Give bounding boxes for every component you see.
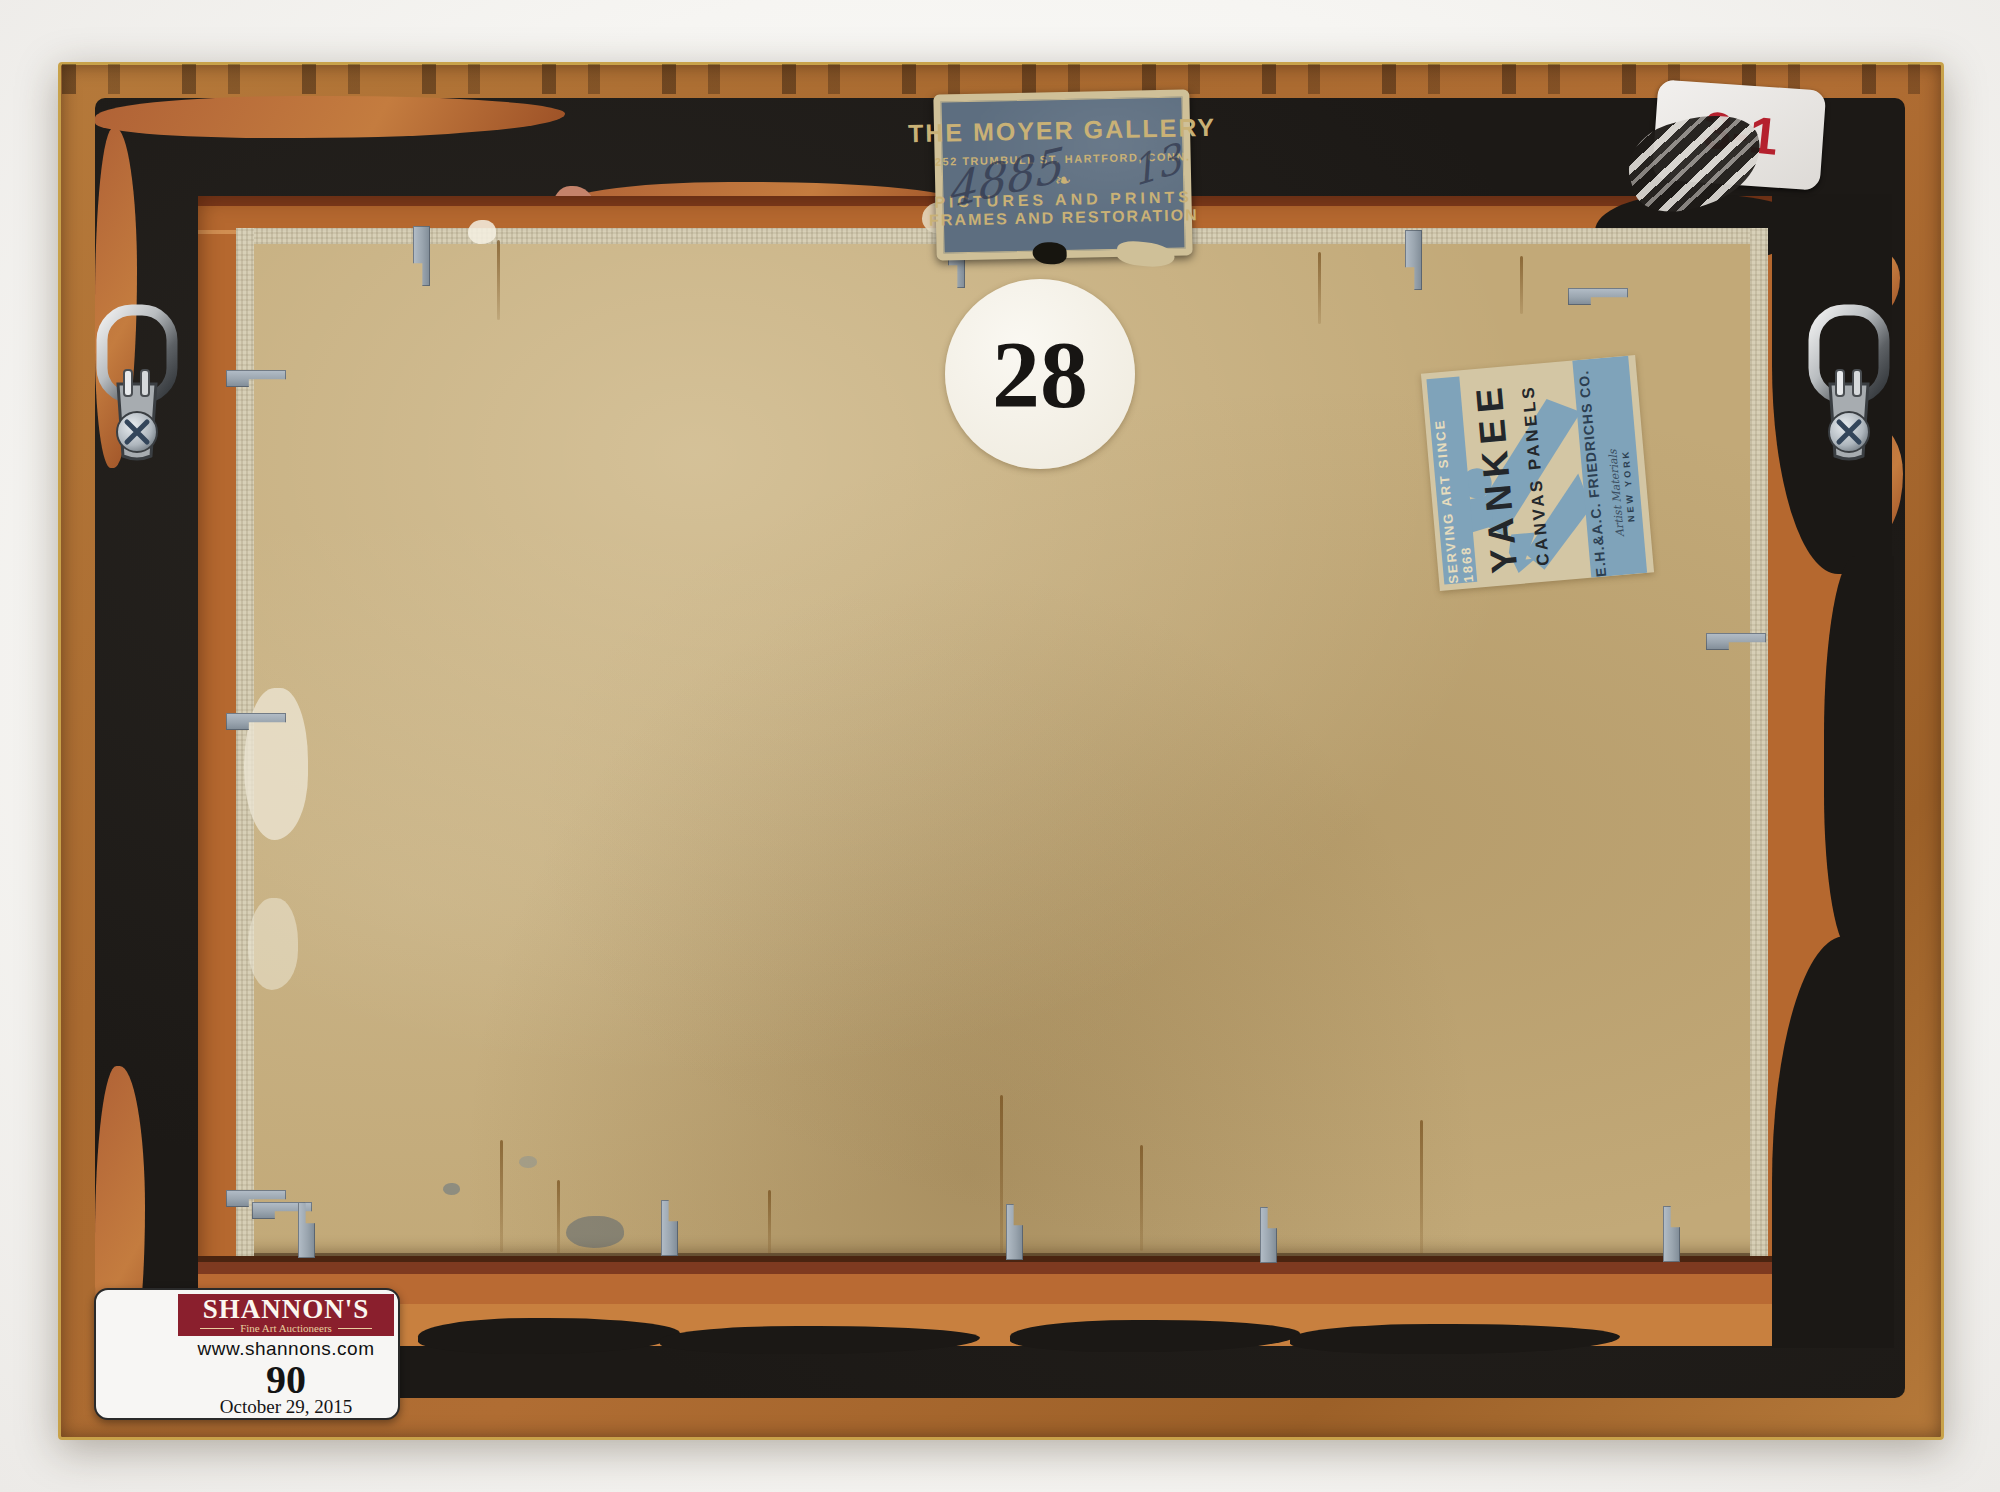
white-paint-smear (248, 898, 298, 990)
drip-mark (768, 1190, 771, 1254)
canvas-panel-right-edge (1750, 228, 1768, 1256)
drip-mark (497, 240, 500, 320)
strap-prong (124, 370, 132, 396)
auction-house-name: SHANNON'S (203, 1296, 370, 1322)
d-ring-hanger-right (1806, 304, 1896, 469)
drip-mark (1318, 252, 1321, 324)
yankee-canvas-panels-label: SERVING ART SINCE 1868 YANKEE CANVAS PAN… (1421, 355, 1654, 591)
drip-mark (500, 1140, 503, 1252)
blue-smudge (443, 1183, 460, 1195)
blue-smudge (519, 1156, 537, 1168)
d-ring-hanger-left (94, 304, 184, 469)
white-fleck (468, 220, 496, 244)
strap-prong (1836, 370, 1844, 396)
moyer-gallery-label: THE MOYER GALLERY 252 TRUMBULL ST. HARTF… (933, 89, 1192, 260)
drip-mark (557, 1180, 560, 1254)
label-tear (1032, 242, 1066, 265)
drip-mark (1140, 1145, 1143, 1251)
photo-of-frame-verso: THE MOYER GALLERY 252 TRUMBULL ST. HARTF… (0, 0, 2000, 1492)
lot-number-sticker: 28 (945, 279, 1135, 469)
black-paper-overlap (1824, 556, 1894, 952)
white-paint-smear (244, 688, 308, 840)
auction-house-label: SHANNON'S Fine Art Auctioneers www.shann… (94, 1288, 400, 1420)
lot-number: 28 (992, 319, 1088, 430)
drip-mark (1420, 1120, 1423, 1254)
auction-sale-date: October 29, 2015 (178, 1396, 394, 1418)
auction-house-division: Fine Art Auctioneers (178, 1322, 394, 1334)
frame-top-paint-chips (62, 64, 1934, 94)
strap-prong (141, 370, 149, 396)
drip-mark (1000, 1095, 1003, 1253)
blue-smudge (566, 1216, 624, 1248)
strap-prong (1853, 370, 1861, 396)
drip-mark (1520, 256, 1523, 314)
auction-house-banner: SHANNON'S Fine Art Auctioneers (178, 1294, 394, 1336)
